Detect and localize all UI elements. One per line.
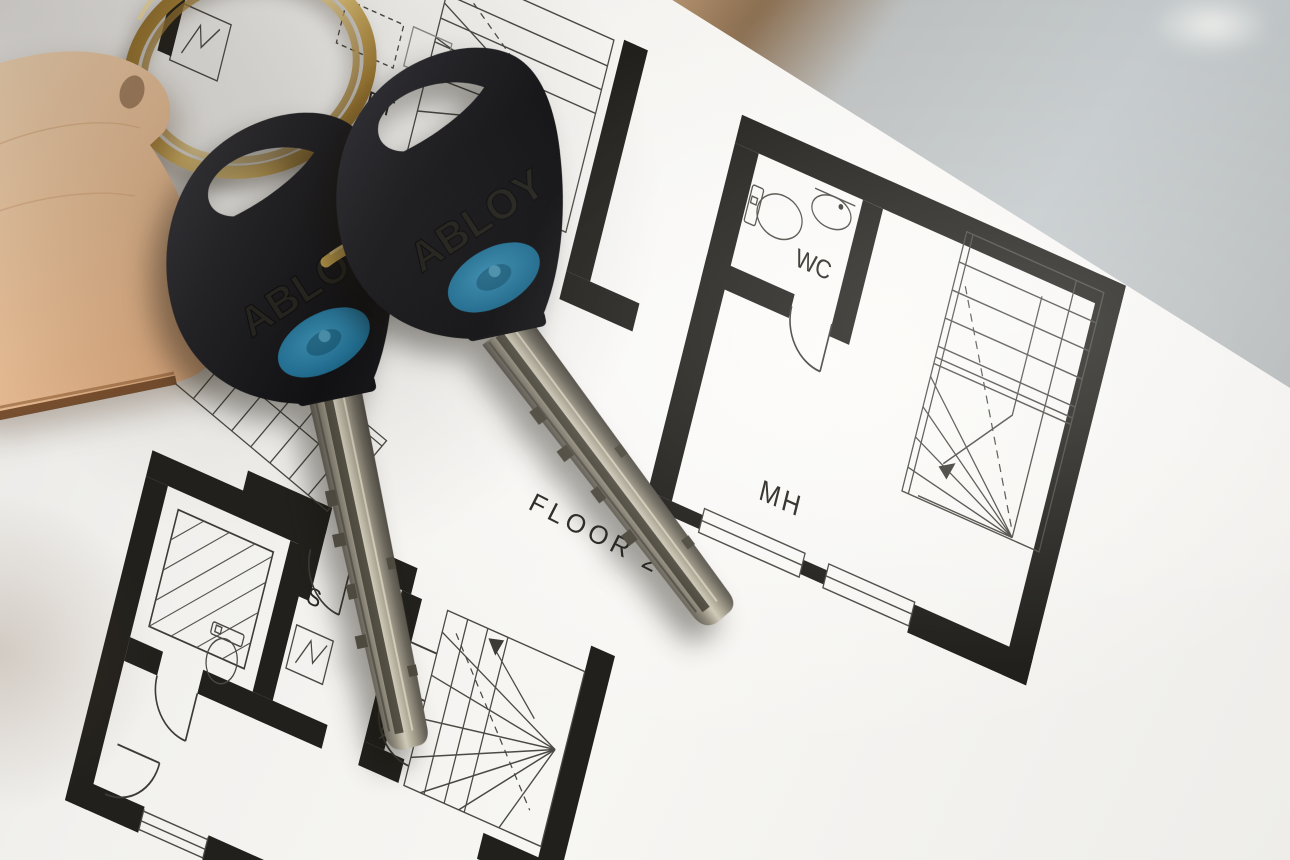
photo-scene: WC MH: [0, 0, 1290, 860]
toilet-symbol: [743, 182, 806, 247]
key-head: ABLOY: [307, 33, 596, 364]
sink-symbol: [808, 188, 856, 236]
label-wc: WC: [792, 244, 834, 287]
label-mh: MH: [756, 473, 806, 524]
